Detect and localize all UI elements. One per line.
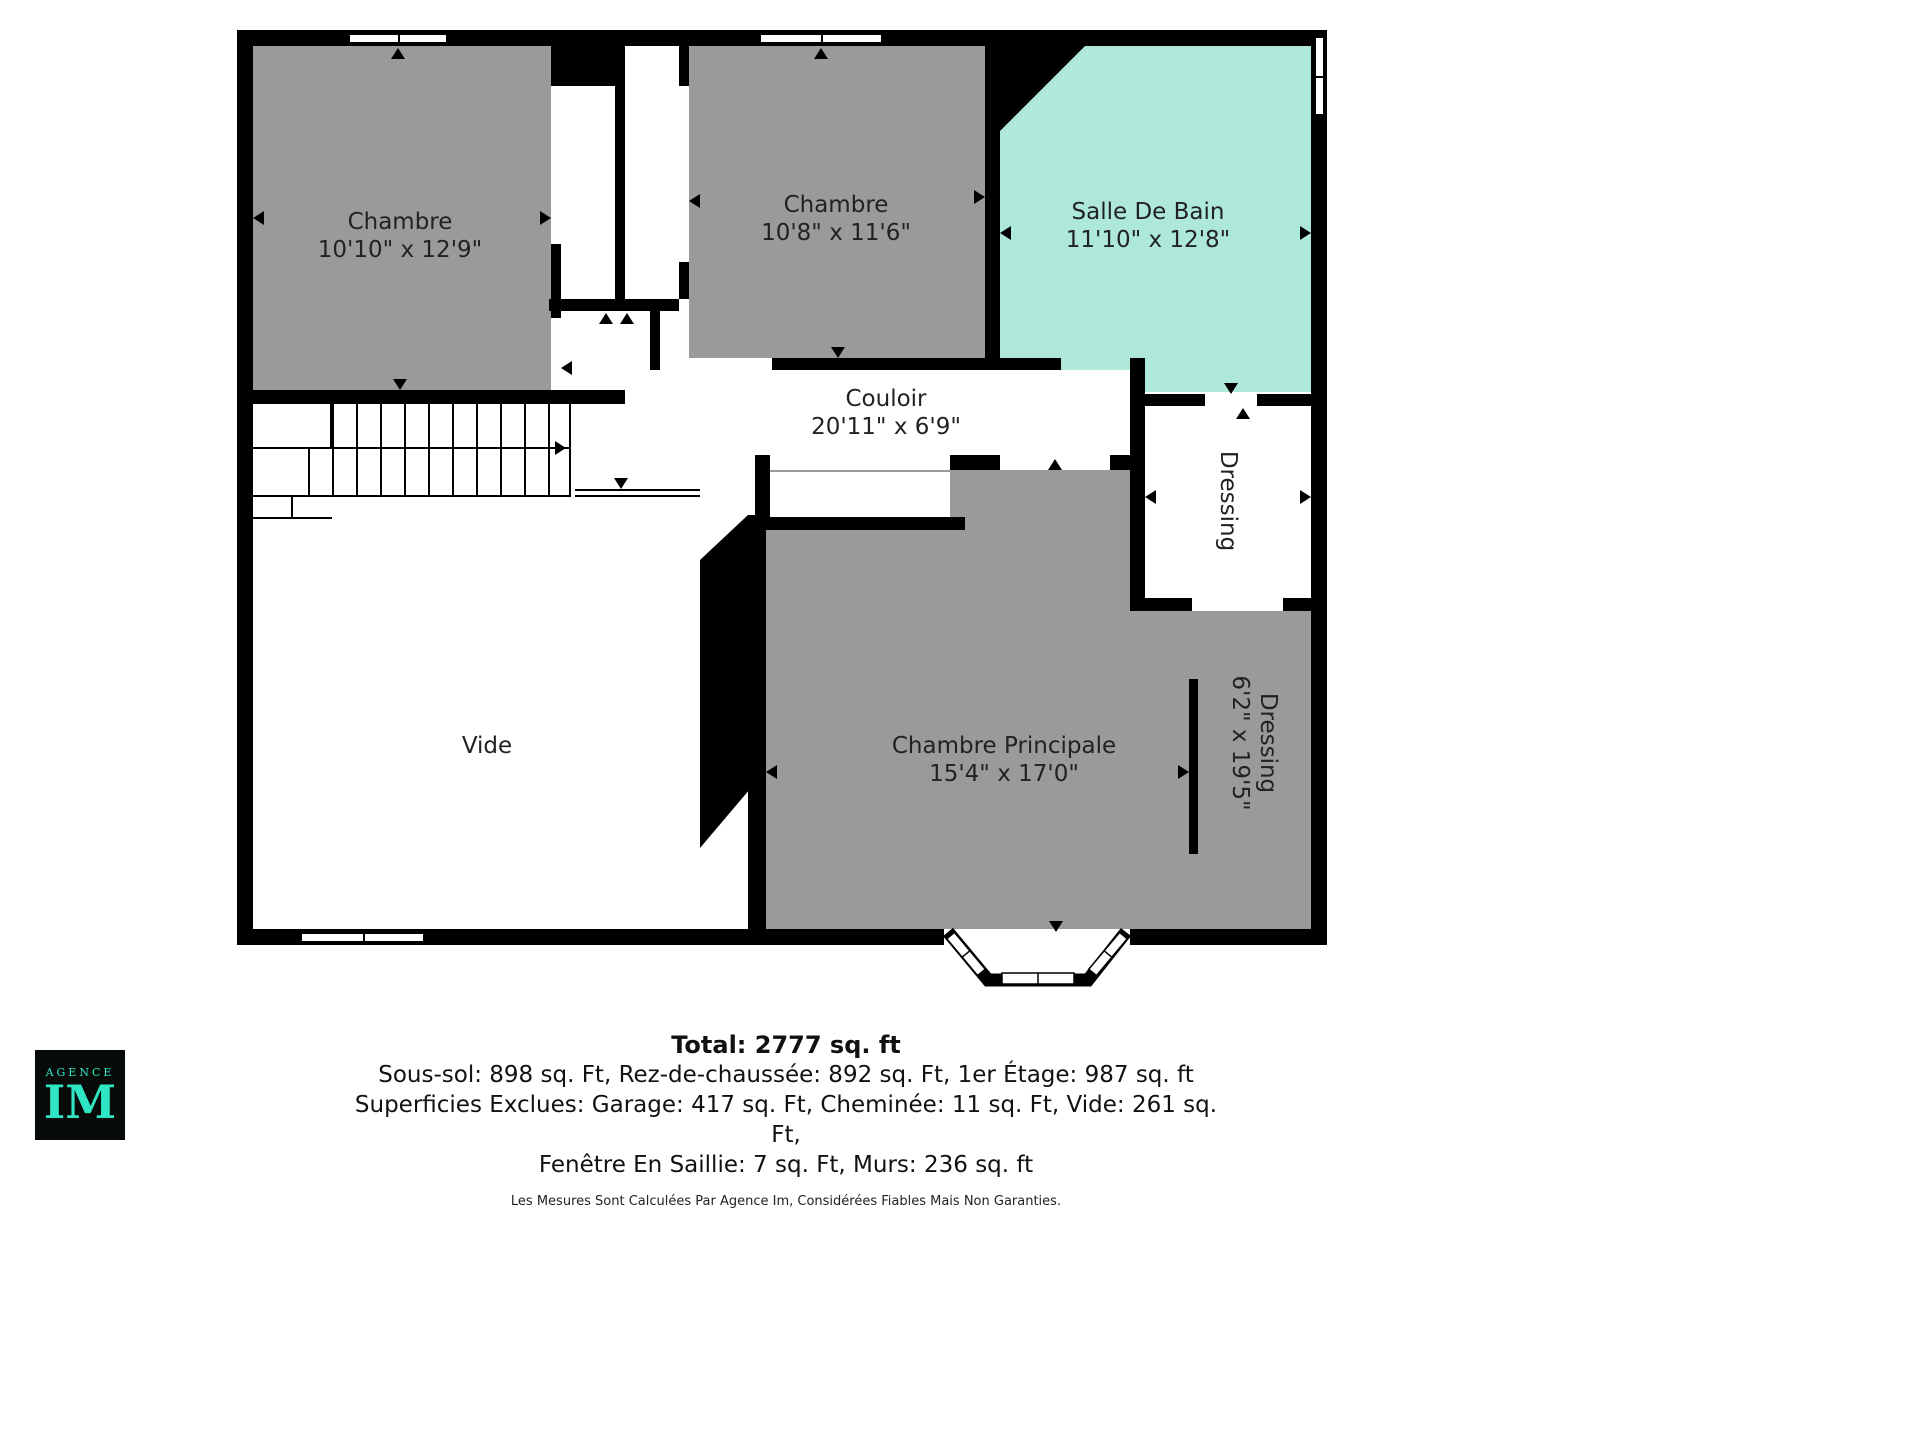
excluded-area-text: Superficies Exclues: Garage: 417 sq. Ft,…: [346, 1090, 1226, 1150]
door-arrow-icon: [1048, 459, 1062, 470]
stair-rail: [575, 489, 700, 491]
room-name: Dressing: [1214, 451, 1242, 551]
disclaimer-text: Les Mesures Sont Calculées Par Agence Im…: [346, 1194, 1226, 1209]
room-dims: 11'10" x 12'8": [1066, 226, 1230, 254]
wall: [615, 46, 625, 299]
staircase: [332, 404, 570, 449]
wall-dressing-bottom: [1130, 598, 1192, 611]
room-dims: 15'4" x 17'0": [892, 760, 1116, 788]
total-area-text: Total: 2777 sq. ft: [346, 1030, 1226, 1060]
agency-logo: AGENCE IM: [35, 1050, 125, 1140]
label-chambre-2: Chambre 10'8" x 11'6": [761, 191, 911, 247]
label-couloir: Couloir 20'11" x 6'9": [811, 385, 961, 441]
stair-line: [253, 447, 570, 449]
label-dressing-haut: Dressing: [1214, 451, 1242, 551]
door-arrow-icon: [620, 313, 634, 324]
door-arrow-icon: [831, 347, 845, 358]
stair-line: [330, 404, 332, 449]
door-arrow-icon: [1145, 490, 1156, 504]
window: [1314, 36, 1325, 116]
wall-niche-bottom: [755, 517, 965, 530]
label-chambre-1: Chambre 10'10" x 12'9": [318, 208, 482, 264]
room-name: Chambre: [761, 191, 911, 219]
room-dims: 10'10" x 12'9": [318, 236, 482, 264]
label-salle-de-bain: Salle De Bain 11'10" x 12'8": [1066, 198, 1230, 254]
wall-dressing-top: [1257, 394, 1311, 406]
wall: [650, 299, 660, 370]
room-name: Salle De Bain: [1066, 198, 1230, 226]
niche-edge-line: [770, 470, 950, 472]
label-chambre-principale: Chambre Principale 15'4" x 17'0": [892, 732, 1116, 788]
staircase: [308, 449, 570, 497]
door-arrow-icon: [1178, 765, 1189, 779]
stair-edge-line: [569, 404, 571, 497]
room-chambre-principale: [950, 470, 1130, 929]
closet-partition: [1189, 679, 1198, 854]
excluded-area-text-2: Fenêtre En Saillie: 7 sq. Ft, Murs: 236 …: [346, 1150, 1226, 1180]
wall-chambre2-bottom: [772, 358, 1000, 370]
room-dims: 6'2" x 19'5": [1226, 675, 1254, 810]
wall: [748, 770, 766, 929]
wall-dressing-left: [1130, 406, 1145, 611]
window: [348, 33, 448, 44]
wall-cp-north: [1110, 455, 1130, 470]
room-name: Dressing: [1254, 675, 1282, 810]
door-arrow-icon: [561, 361, 572, 375]
label-vide: Vide: [462, 732, 512, 760]
door-arrow-icon: [1300, 490, 1311, 504]
room-name: Vide: [462, 732, 512, 760]
label-dressing-bas: Dressing 6'2" x 19'5": [1226, 675, 1282, 810]
room-chambre-principale: [766, 530, 950, 929]
door-arrow-icon: [599, 313, 613, 324]
door-arrow-icon: [614, 478, 628, 489]
room-name: Chambre: [318, 208, 482, 236]
room-name: Couloir: [811, 385, 961, 413]
floors-area-text: Sous-sol: 898 sq. Ft, Rez-de-chaussée: 8…: [346, 1060, 1226, 1090]
door-arrow-icon: [540, 211, 551, 225]
door-arrow-icon: [393, 379, 407, 390]
closet-nook-2: [625, 46, 679, 299]
door-arrow-icon: [1236, 408, 1250, 419]
stair-direction-arrow-icon: [555, 441, 566, 455]
wall-chambre1-bottom: [237, 390, 625, 404]
wall-cp-north: [950, 455, 1000, 470]
wall-outer-bottom: [1130, 929, 1327, 945]
window: [759, 33, 883, 44]
stair-line: [253, 495, 570, 497]
door-arrow-icon: [689, 194, 700, 208]
wall: [679, 262, 689, 299]
wall-outer-left: [237, 30, 253, 945]
room-chambre-principale: [1130, 611, 1311, 929]
wall-dressing-top: [1130, 394, 1205, 406]
bay-window: [930, 920, 1140, 992]
room-dims: 10'8" x 11'6": [761, 219, 911, 247]
wall-outer-right: [1311, 30, 1327, 945]
window: [300, 932, 425, 943]
window-arrow-icon: [391, 48, 405, 59]
wall: [551, 46, 615, 86]
door-arrow-icon: [766, 765, 777, 779]
window-arrow-icon: [814, 48, 828, 59]
logo-im-text: IM: [44, 1080, 116, 1124]
area-summary: Total: 2777 sq. ft Sous-sol: 898 sq. Ft,…: [346, 1030, 1226, 1209]
door-arrow-icon: [1300, 226, 1311, 240]
door-arrow-icon: [974, 190, 985, 204]
wall-dressing-bottom: [1283, 598, 1311, 611]
wall: [985, 358, 1061, 370]
closet-nook-1: [551, 86, 625, 299]
door-arrow-icon: [253, 211, 264, 225]
door-arrow-icon: [1000, 226, 1011, 240]
floorplan-canvas: Chambre 10'10" x 12'9" Chambre 10'8" x 1…: [0, 0, 1920, 1440]
wall: [679, 46, 689, 86]
stair-rail: [575, 495, 700, 497]
door-arrow-icon: [1224, 383, 1238, 394]
room-dims: 20'11" x 6'9": [811, 413, 961, 441]
room-name: Chambre Principale: [892, 732, 1116, 760]
stair-line: [291, 495, 293, 519]
